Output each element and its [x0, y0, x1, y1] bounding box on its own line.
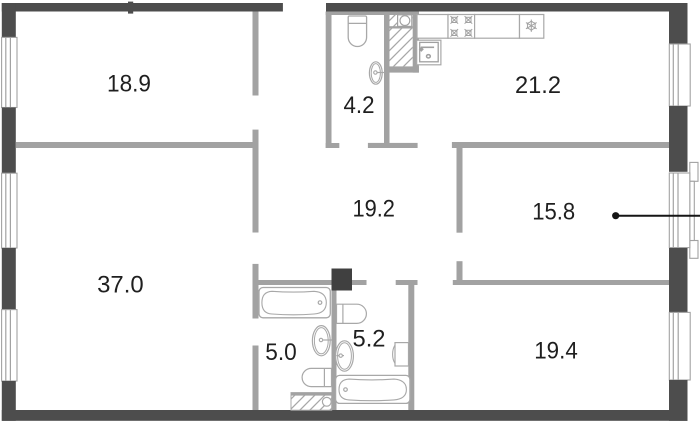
svg-text:19.2: 19.2 — [352, 195, 395, 222]
svg-text:15.8: 15.8 — [532, 199, 575, 226]
svg-text:5.2: 5.2 — [353, 326, 386, 353]
svg-text:5.0: 5.0 — [265, 339, 297, 366]
svg-text:19.4: 19.4 — [534, 338, 578, 365]
svg-text:18.9: 18.9 — [107, 70, 151, 97]
svg-text:37.0: 37.0 — [97, 272, 144, 299]
svg-text:21.2: 21.2 — [515, 72, 561, 99]
svg-text:4.2: 4.2 — [344, 92, 375, 119]
